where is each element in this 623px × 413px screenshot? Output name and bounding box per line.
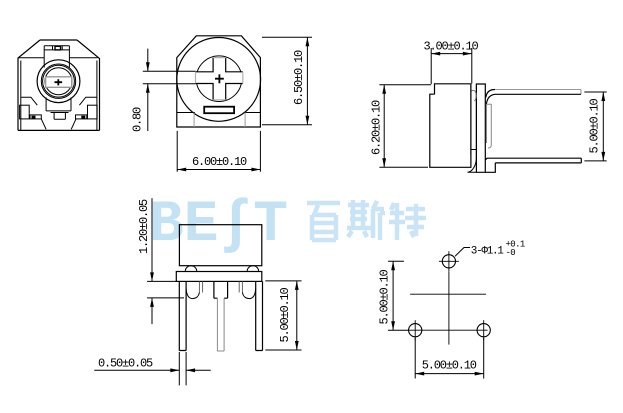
svg-text:5.00±0.10: 5.00±0.10 bbox=[278, 287, 292, 342]
svg-text:5.00±0.10: 5.00±0.10 bbox=[588, 98, 602, 153]
svg-text:3-Φ1.1: 3-Φ1.1 bbox=[471, 245, 505, 257]
svg-text:6.50±0.10: 6.50±0.10 bbox=[292, 50, 306, 105]
svg-text:5.00±0.10: 5.00±0.10 bbox=[378, 269, 392, 324]
svg-text:5.00±0.10: 5.00±0.10 bbox=[422, 359, 477, 373]
svg-text:6.20±0.10: 6.20±0.10 bbox=[370, 100, 384, 155]
svg-text:0.50±0.05: 0.50±0.05 bbox=[98, 357, 153, 371]
svg-text:BE∫T: BE∫T bbox=[149, 193, 288, 258]
svg-text:3.00±0.10: 3.00±0.10 bbox=[423, 40, 478, 54]
svg-text:6.00±0.10: 6.00±0.10 bbox=[192, 155, 247, 169]
svg-text:-0: -0 bbox=[506, 248, 516, 258]
svg-text:0.80: 0.80 bbox=[131, 107, 145, 132]
svg-text:1.20±0.05: 1.20±0.05 bbox=[137, 199, 151, 254]
